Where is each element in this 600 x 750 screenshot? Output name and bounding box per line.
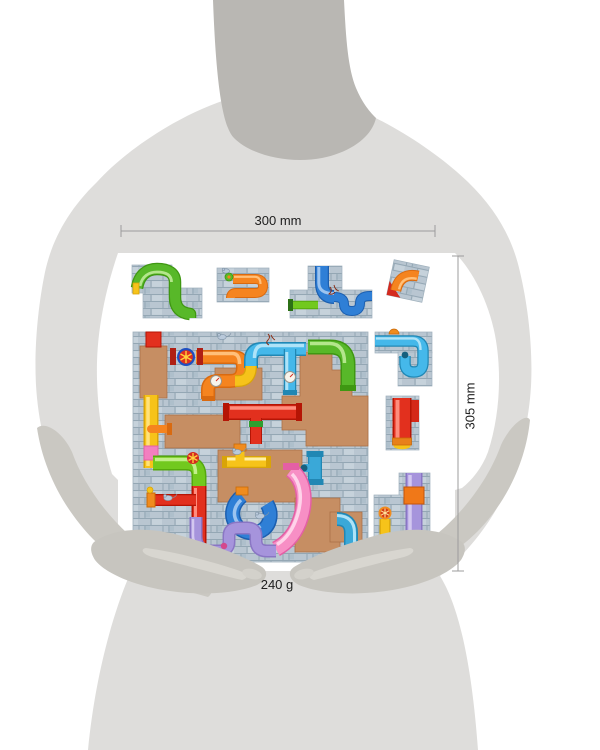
width-label: 300 mm	[255, 213, 302, 228]
product-dimension-illustration: 300 mm 305 mm 240 g	[0, 0, 600, 750]
puzzle-piece-tilted-elbow	[387, 260, 430, 303]
puzzle-board	[120, 332, 368, 562]
head-silhouette	[213, 0, 376, 160]
illustration-canvas	[0, 0, 600, 750]
height-label: 305 mm	[463, 383, 478, 430]
puzzle-piece-red-pipe	[386, 396, 419, 450]
puzzle-piece-orange-u	[217, 268, 269, 302]
weight-label: 240 g	[261, 577, 294, 592]
